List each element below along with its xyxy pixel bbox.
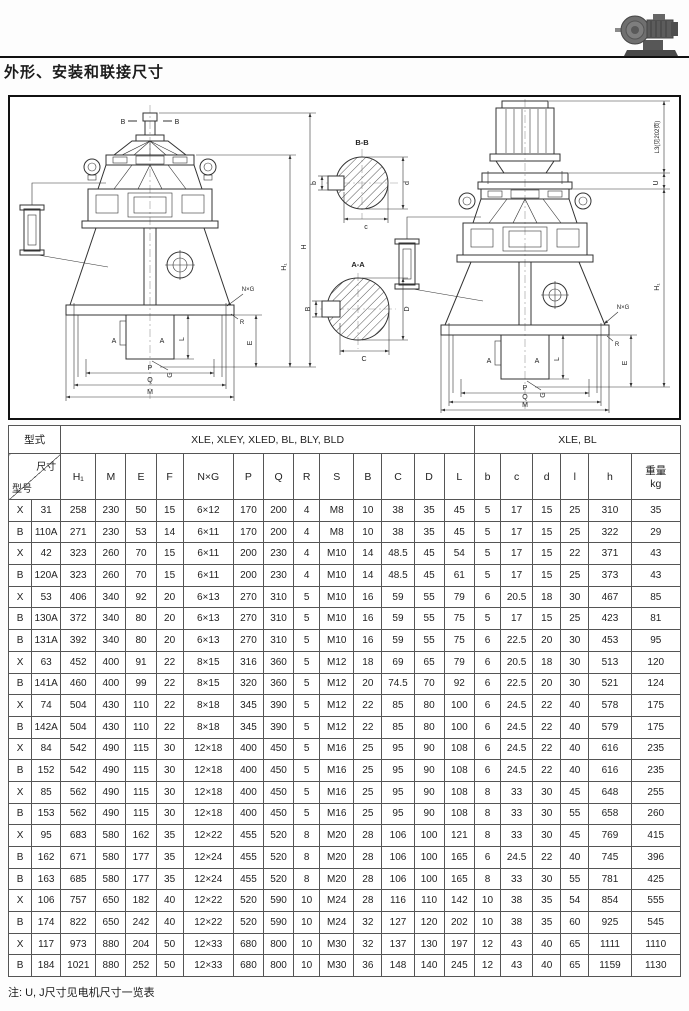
table-cell: 8×18 <box>183 695 233 717</box>
table-cell: 45 <box>444 500 474 522</box>
table-row: X845424901153012×184004505M1625959010862… <box>9 738 681 760</box>
table-cell: 25 <box>354 781 382 803</box>
table-cell: 5 <box>294 781 320 803</box>
table-cell: 490 <box>96 803 126 825</box>
table-cell: X <box>9 738 32 760</box>
table-cell: 108 <box>444 803 474 825</box>
table-cell: 5 <box>294 651 320 673</box>
table-cell: 20 <box>354 673 382 695</box>
table-cell: B <box>9 847 32 869</box>
table-cell: 100 <box>414 825 444 847</box>
table-cell: 165 <box>444 868 474 890</box>
table-cell: 590 <box>263 890 293 912</box>
table-cell: 170 <box>233 521 263 543</box>
table-cell: 390 <box>263 716 293 738</box>
section-mark-b-right: B <box>175 119 180 126</box>
table-cell: X <box>9 825 32 847</box>
table-row: B141A46040099228×153203605M122074.570926… <box>9 673 681 695</box>
table-cell: 562 <box>61 781 96 803</box>
table-cell: 55 <box>414 586 444 608</box>
table-cell: 6×11 <box>183 521 233 543</box>
table-cell: 12×18 <box>183 738 233 760</box>
table-cell: 202 <box>444 912 474 934</box>
table-cell: 197 <box>444 933 474 955</box>
eyebolt-right <box>200 159 216 180</box>
table-cell: 555 <box>631 890 680 912</box>
table-cell: 4 <box>294 543 320 565</box>
table-cell: 6×11 <box>183 543 233 565</box>
table-cell: 12×22 <box>183 825 233 847</box>
table-cell: 120 <box>414 912 444 934</box>
table-cell: 70 <box>414 673 444 695</box>
table-cell: 685 <box>61 868 96 890</box>
table-cell: 4 <box>294 500 320 522</box>
dim-h1: H₁ <box>281 263 288 271</box>
table-cell: 30 <box>156 760 183 782</box>
table-cell: 17 <box>501 500 533 522</box>
table-cell: 127 <box>382 912 414 934</box>
table-cell: M10 <box>320 630 354 652</box>
table-cell: 80 <box>414 716 444 738</box>
gearmotor-photo <box>613 10 685 57</box>
table-cell: 4 <box>294 521 320 543</box>
dim-nxg: N×G <box>242 287 255 293</box>
table-cell: 520 <box>233 890 263 912</box>
table-cell: 17 <box>501 608 533 630</box>
table-cell: 163 <box>32 868 61 890</box>
table-cell: 490 <box>96 760 126 782</box>
table-cell: 28 <box>354 847 382 869</box>
table-cell: 148 <box>382 955 414 977</box>
table-cell: 5 <box>294 630 320 652</box>
table-cell: B <box>9 955 32 977</box>
table-cell: 35 <box>631 500 680 522</box>
col-header: b <box>474 454 500 500</box>
table-cell: 925 <box>589 912 631 934</box>
table-cell: M12 <box>320 651 354 673</box>
table-cell: 6 <box>474 738 500 760</box>
col-header: P <box>233 454 263 500</box>
table-cell: 30 <box>156 738 183 760</box>
table-cell: 6 <box>474 630 500 652</box>
table-cell: 95 <box>382 781 414 803</box>
table-cell: 95 <box>32 825 61 847</box>
table-cell: M30 <box>320 955 354 977</box>
table-cell: 5 <box>294 586 320 608</box>
table-cell: 20 <box>156 608 183 630</box>
table-cell: 35 <box>156 847 183 869</box>
catalog-page: 外形、安装和联接尺寸 B B <box>0 0 689 1011</box>
table-row: X3125823050156×121702004M810383545517152… <box>9 500 681 522</box>
table-cell: 10 <box>294 955 320 977</box>
table-cell: 20 <box>156 630 183 652</box>
table-cell: M20 <box>320 825 354 847</box>
table-cell: M10 <box>320 608 354 630</box>
table-cell: M30 <box>320 933 354 955</box>
table-cell: 230 <box>263 543 293 565</box>
table-cell: M8 <box>320 521 354 543</box>
table-cell: X <box>9 543 32 565</box>
table-cell: 22 <box>533 847 561 869</box>
table-cell: 42 <box>32 543 61 565</box>
table-cell: 35 <box>414 521 444 543</box>
table-cell: 400 <box>233 738 263 760</box>
table-cell: 38 <box>382 521 414 543</box>
table-cell: 85 <box>631 586 680 608</box>
table-cell: 260 <box>96 543 126 565</box>
table-cell: 6 <box>474 695 500 717</box>
table-cell: X <box>9 651 32 673</box>
table-cell: 200 <box>263 521 293 543</box>
table-cell: 28 <box>354 868 382 890</box>
dim-l3: L3(见202页) <box>654 121 661 154</box>
table-cell: 40 <box>561 716 589 738</box>
dim-d-small: d <box>404 181 411 185</box>
table-cell: 542 <box>61 738 96 760</box>
table-cell: 270 <box>233 630 263 652</box>
table-cell: 177 <box>126 847 156 869</box>
table-cell: B <box>9 803 32 825</box>
table-cell: 110 <box>414 890 444 912</box>
table-cell: M8 <box>320 500 354 522</box>
table-cell: 425 <box>631 868 680 890</box>
table-cell: 12×22 <box>183 912 233 934</box>
table-cell: 115 <box>126 738 156 760</box>
dim-c-small: c <box>364 224 368 231</box>
table-cell: 74.5 <box>382 673 414 695</box>
table-cell: 18 <box>533 651 561 673</box>
table-body: X3125823050156×121702004M810383545517152… <box>9 500 681 977</box>
table-cell: 8 <box>294 825 320 847</box>
table-cell: 30 <box>533 868 561 890</box>
table-cell: 360 <box>263 651 293 673</box>
table-cell: 12×18 <box>183 781 233 803</box>
table-cell: 100 <box>414 847 444 869</box>
table-cell: 115 <box>126 803 156 825</box>
table-cell: 59 <box>382 608 414 630</box>
table-cell: 48.5 <box>382 543 414 565</box>
table-cell: 22 <box>354 716 382 738</box>
table-cell: 177 <box>126 868 156 890</box>
table-cell: 323 <box>61 565 96 587</box>
table-cell: 12×24 <box>183 868 233 890</box>
table-cell: 15 <box>156 500 183 522</box>
dim-b-big: B <box>305 306 312 311</box>
header-row-columns: 尺寸 型号 H₁ M E F N×G P Q R S B C D L b c d… <box>9 454 681 500</box>
table-cell: 800 <box>263 933 293 955</box>
table-cell: 260 <box>631 803 680 825</box>
table-cell: 85 <box>382 695 414 717</box>
table-cell: 800 <box>263 955 293 977</box>
dimension-drawings: B B <box>8 95 681 420</box>
table-cell: X <box>9 933 32 955</box>
table-cell: 5 <box>294 608 320 630</box>
gearmotor-photo-image <box>613 10 685 57</box>
dim-q: Q <box>147 377 153 384</box>
table-cell: 1111 <box>589 933 631 955</box>
table-cell: 170 <box>233 500 263 522</box>
table-cell: 453 <box>589 630 631 652</box>
table-cell: 258 <box>61 500 96 522</box>
table-cell: 467 <box>589 586 631 608</box>
dim-p: P <box>148 365 153 372</box>
table-cell: 28 <box>354 890 382 912</box>
table-cell: 235 <box>631 760 680 782</box>
table-cell: 50 <box>156 955 183 977</box>
table-row: B131A39234080206×132703105M1016595575622… <box>9 630 681 652</box>
table-cell: 400 <box>96 673 126 695</box>
table-cell: 90 <box>414 738 444 760</box>
table-cell: 230 <box>96 500 126 522</box>
table-cell: 115 <box>126 781 156 803</box>
table-cell: 70 <box>126 565 156 587</box>
table-cell: 5 <box>474 521 500 543</box>
col-header: E <box>126 454 156 500</box>
dim-e: E <box>247 340 254 345</box>
table-cell: 50 <box>126 500 156 522</box>
table-cell: 30 <box>156 781 183 803</box>
table-cell: 117 <box>32 933 61 955</box>
table-cell: B <box>9 608 32 630</box>
table-cell: 578 <box>589 695 631 717</box>
table-cell: 80 <box>126 608 156 630</box>
table-cell: 45 <box>561 825 589 847</box>
table-cell: 781 <box>589 868 631 890</box>
table-cell: 854 <box>589 890 631 912</box>
table-cell: 110 <box>126 695 156 717</box>
table-cell: 55 <box>414 630 444 652</box>
table-cell: 106 <box>382 868 414 890</box>
table-cell: 430 <box>96 716 126 738</box>
table-cell: 245 <box>444 955 474 977</box>
table-cell: 590 <box>263 912 293 934</box>
table-cell: 10 <box>354 500 382 522</box>
table-cell: 70 <box>126 543 156 565</box>
table-cell: X <box>9 695 32 717</box>
table-cell: 8 <box>474 868 500 890</box>
table-cell: B <box>9 565 32 587</box>
table-cell: 6 <box>474 716 500 738</box>
table-cell: M16 <box>320 738 354 760</box>
col-header: H₁ <box>61 454 96 500</box>
table-cell: 504 <box>61 695 96 717</box>
table-cell: 204 <box>126 933 156 955</box>
table-cell: 75 <box>444 608 474 630</box>
table-cell: 84 <box>32 738 61 760</box>
table-cell: 30 <box>156 803 183 825</box>
table-cell: 450 <box>263 738 293 760</box>
table-cell: 22.5 <box>501 630 533 652</box>
table-cell: 90 <box>414 760 444 782</box>
table-cell: 45 <box>414 565 444 587</box>
table-cell: 8×18 <box>183 716 233 738</box>
table-cell: 12 <box>474 933 500 955</box>
table-cell: 92 <box>444 673 474 695</box>
table-cell: 95 <box>631 630 680 652</box>
table-cell: 35 <box>414 500 444 522</box>
backstop-assembly <box>20 183 108 267</box>
table-cell: 28 <box>354 825 382 847</box>
table-cell: 616 <box>589 760 631 782</box>
dim-e-2: E <box>622 360 629 365</box>
table-cell: 45 <box>444 521 474 543</box>
table-cell: 6×12 <box>183 500 233 522</box>
table-cell: 22 <box>533 695 561 717</box>
table-cell: 406 <box>61 586 96 608</box>
table-cell: 15 <box>533 521 561 543</box>
table-cell: 20 <box>533 630 561 652</box>
table-cell: 69 <box>382 651 414 673</box>
table-cell: 35 <box>533 890 561 912</box>
table-cell: 92 <box>126 586 156 608</box>
table-cell: 973 <box>61 933 96 955</box>
table-cell: 108 <box>444 781 474 803</box>
table-cell: 270 <box>233 586 263 608</box>
table-cell: 17 <box>501 521 533 543</box>
table-cell: 35 <box>156 868 183 890</box>
table-cell: 18 <box>354 651 382 673</box>
table-cell: B <box>9 521 32 543</box>
table-cell: 5 <box>474 608 500 630</box>
table-cell: 22 <box>156 716 183 738</box>
col-header: B <box>354 454 382 500</box>
table-cell: 415 <box>631 825 680 847</box>
type-label-cell: 型式 <box>9 426 61 454</box>
table-cell: X <box>9 586 32 608</box>
table-cell: 115 <box>126 760 156 782</box>
table-cell: 40 <box>156 912 183 934</box>
table-cell: 25 <box>354 760 382 782</box>
table-cell: 121 <box>444 825 474 847</box>
table-cell: 141A <box>32 673 61 695</box>
table-cell: 33 <box>501 868 533 890</box>
table-cell: 184 <box>32 955 61 977</box>
table-row: B142A504430110228×183453905M122285801006… <box>9 716 681 738</box>
table-cell: 542 <box>61 760 96 782</box>
table-cell: 769 <box>589 825 631 847</box>
dim-q-2: Q <box>522 394 528 401</box>
table-cell: 65 <box>414 651 444 673</box>
table-cell: 175 <box>631 695 680 717</box>
col-header: S <box>320 454 354 500</box>
dim-d-big: D <box>404 306 411 311</box>
table-cell: 230 <box>263 565 293 587</box>
table-cell: M12 <box>320 673 354 695</box>
table-cell: 91 <box>126 651 156 673</box>
col-header: C <box>382 454 414 500</box>
section-mark-a-right-2: A <box>535 358 540 365</box>
dim-l-2: L <box>554 357 561 361</box>
table-cell: B <box>9 912 32 934</box>
table-cell: 25 <box>561 565 589 587</box>
table-cell: 340 <box>96 608 126 630</box>
table-cell: 12×33 <box>183 933 233 955</box>
table-cell: 683 <box>61 825 96 847</box>
table-cell: 320 <box>233 673 263 695</box>
table-cell: 65 <box>561 933 589 955</box>
table-row: B1535624901153012×184004505M162595901088… <box>9 803 681 825</box>
table-cell: 5 <box>294 673 320 695</box>
table-cell: X <box>9 781 32 803</box>
table-cell: 24.5 <box>501 716 533 738</box>
table-cell: 340 <box>96 586 126 608</box>
table-cell: 85 <box>32 781 61 803</box>
table-cell: 455 <box>233 825 263 847</box>
table-cell: 270 <box>233 608 263 630</box>
table-cell: 35 <box>156 825 183 847</box>
table-cell: 360 <box>263 673 293 695</box>
table-cell: 22 <box>156 673 183 695</box>
table-cell: 6×13 <box>183 586 233 608</box>
dimension-table: 型式 XLE, XLEY, XLED, BL, BLY, BLD XLE, BL… <box>8 425 681 977</box>
table-cell: 25 <box>354 738 382 760</box>
table-cell: 310 <box>589 500 631 522</box>
table-cell: 40 <box>561 695 589 717</box>
table-cell: 22.5 <box>501 673 533 695</box>
table-cell: 12×18 <box>183 760 233 782</box>
dim-p-2: P <box>523 385 528 392</box>
dim-r: R <box>240 320 245 326</box>
table-cell: M12 <box>320 695 354 717</box>
table-cell: 230 <box>96 521 126 543</box>
table-cell: B <box>9 673 32 695</box>
table-cell: 310 <box>263 630 293 652</box>
table-cell: 120A <box>32 565 61 587</box>
table-cell: 25 <box>561 608 589 630</box>
table-cell: 65 <box>561 955 589 977</box>
table-cell: 460 <box>61 673 96 695</box>
table-cell: 74 <box>32 695 61 717</box>
table-cell: 106 <box>382 847 414 869</box>
table-cell: 450 <box>263 760 293 782</box>
table-cell: 106 <box>382 825 414 847</box>
table-cell: 130A <box>32 608 61 630</box>
table-cell: 32 <box>354 933 382 955</box>
table-cell: 6×13 <box>183 608 233 630</box>
table-cell: 8 <box>474 825 500 847</box>
table-cell: 15 <box>156 543 183 565</box>
table-cell: 24.5 <box>501 738 533 760</box>
table-cell: 22 <box>561 543 589 565</box>
table-cell: 40 <box>533 955 561 977</box>
col-header: d <box>533 454 561 500</box>
table-cell: 30 <box>561 673 589 695</box>
table-cell: 6 <box>474 673 500 695</box>
table-cell: 271 <box>61 521 96 543</box>
table-cell: 31 <box>32 500 61 522</box>
table-cell: 430 <box>96 695 126 717</box>
table-cell: 15 <box>533 500 561 522</box>
table-cell: 12×33 <box>183 955 233 977</box>
table-row: B120A32326070156×112002304M101448.545615… <box>9 565 681 587</box>
left-view-reducer: B B <box>20 105 316 401</box>
table-cell: 5 <box>474 543 500 565</box>
table-cell: 5 <box>294 803 320 825</box>
table-cell: 400 <box>233 803 263 825</box>
table-cell: 16 <box>354 586 382 608</box>
table-cell: 60 <box>561 912 589 934</box>
table-cell: 182 <box>126 890 156 912</box>
table-cell: 30 <box>533 803 561 825</box>
table-cell: 90 <box>414 803 444 825</box>
table-cell: 22 <box>533 738 561 760</box>
table-cell: 43 <box>501 933 533 955</box>
table-row: B18410218802525012×3368080010M3036148140… <box>9 955 681 977</box>
table-cell: 252 <box>126 955 156 977</box>
table-cell: 10 <box>294 890 320 912</box>
table-cell: 580 <box>96 868 126 890</box>
table-cell: 10 <box>354 521 382 543</box>
